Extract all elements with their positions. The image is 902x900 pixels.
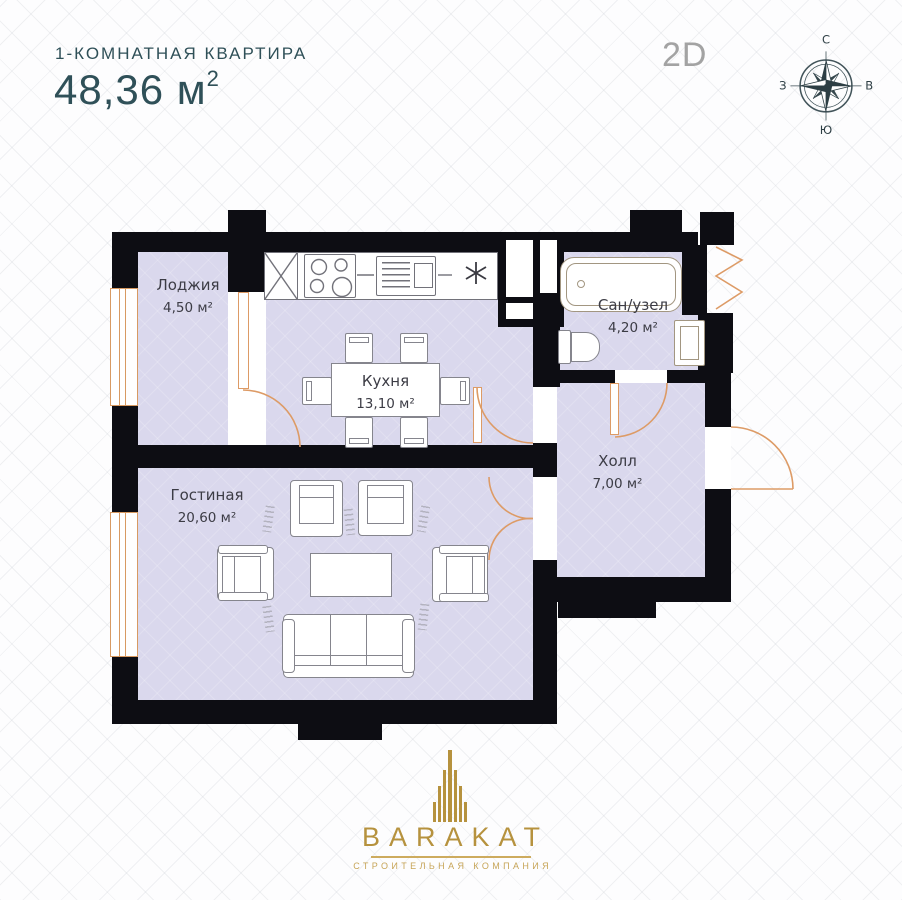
page-background: { "header": { "title": "1-КОМНАТНАЯ КВАР… <box>0 0 902 900</box>
room-name: Сан/узел <box>578 296 688 314</box>
stove-burner <box>333 278 352 297</box>
brand-logo: BARAKAT СТРОИТЕЛЬНАЯ КОМПАНИЯ <box>0 748 902 871</box>
fridge-snowflake-icon <box>466 262 486 284</box>
bathroom-door-arc <box>615 383 667 437</box>
room-label-kitchen: Кухня 13,10 м² <box>331 372 440 412</box>
living-door-arc-bottom <box>489 518 533 560</box>
stove-burner <box>311 280 324 293</box>
brand-name: BARAKAT <box>0 822 902 853</box>
room-label-bathroom: Сан/узел 4,20 м² <box>578 296 688 336</box>
room-label-living: Гостиная 20,60 м² <box>152 486 262 526</box>
room-area: 4,20 м² <box>578 320 688 336</box>
room-name: Гостиная <box>152 486 262 504</box>
stove-burner <box>312 260 327 275</box>
entrance-door-arc <box>731 427 793 489</box>
room-name: Кухня <box>331 372 440 390</box>
brand-underline <box>371 856 531 858</box>
stove-burner <box>335 259 347 271</box>
brand-tagline: СТРОИТЕЛЬНАЯ КОМПАНИЯ <box>0 861 902 871</box>
brand-building-icon <box>431 748 471 822</box>
loggia-door-arc <box>243 390 300 447</box>
kitchen-door-arc <box>477 387 533 443</box>
room-label-loggia: Лоджия 4,50 м² <box>138 276 238 316</box>
room-area: 7,00 м² <box>565 476 670 492</box>
living-door-arc-top <box>489 477 533 519</box>
room-area: 13,10 м² <box>331 396 440 412</box>
room-area: 20,60 м² <box>152 510 262 526</box>
room-name: Холл <box>565 452 670 470</box>
room-area: 4,50 м² <box>138 300 238 316</box>
room-name: Лоджия <box>138 276 238 294</box>
vent-zigzag-icon <box>716 247 742 309</box>
room-label-hall: Холл 7,00 м² <box>565 452 670 492</box>
